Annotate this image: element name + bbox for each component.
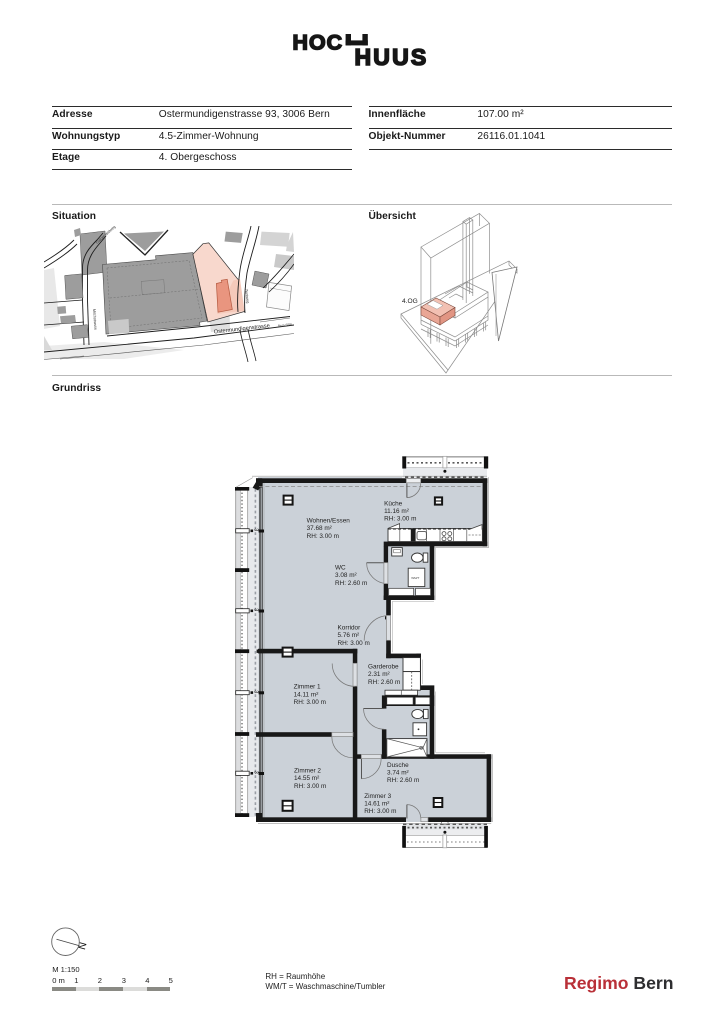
svg-text:RH: 3.00 m: RH: 3.00 m bbox=[364, 808, 396, 815]
svg-text:Küche: Küche bbox=[384, 500, 403, 507]
svg-text:4.OG: 4.OG bbox=[402, 298, 418, 305]
svg-text:14.55 m²: 14.55 m² bbox=[294, 775, 319, 782]
svg-text:Zimmer 1: Zimmer 1 bbox=[294, 684, 321, 691]
svg-text:RH: 2.60 m: RH: 2.60 m bbox=[335, 580, 367, 587]
svg-text:HUUS: HUUS bbox=[355, 44, 429, 70]
svg-text:2.31 m²: 2.31 m² bbox=[368, 671, 390, 678]
svg-text:RH: 3.00 m: RH: 3.00 m bbox=[294, 783, 326, 790]
svg-text:Wohnen/Essen: Wohnen/Essen bbox=[307, 518, 351, 525]
svg-text:RH: 3.00 m: RH: 3.00 m bbox=[384, 516, 416, 523]
svg-text:Zimmer 3: Zimmer 3 bbox=[364, 793, 391, 800]
svg-text:11.16 m²: 11.16 m² bbox=[384, 508, 409, 515]
svg-text:Korridor: Korridor bbox=[338, 625, 362, 632]
svg-text:RH: 3.00 m: RH: 3.00 m bbox=[294, 699, 326, 706]
svg-text:RH: 2.60 m: RH: 2.60 m bbox=[368, 679, 400, 686]
svg-text:37.68 m²: 37.68 m² bbox=[307, 525, 332, 532]
svg-text:3: 3 bbox=[252, 528, 258, 531]
svg-text:RH: 3.00 m: RH: 3.00 m bbox=[307, 533, 339, 540]
svg-text:HOC: HOC bbox=[293, 31, 344, 55]
svg-text:Garderobe: Garderobe bbox=[368, 664, 399, 671]
svg-text:5.76 m²: 5.76 m² bbox=[338, 632, 360, 639]
svg-text:RH: 3.00 m: RH: 3.00 m bbox=[338, 640, 370, 647]
svg-text:14.61 m²: 14.61 m² bbox=[364, 801, 389, 808]
svg-text:WM/T: WM/T bbox=[411, 576, 419, 580]
svg-text:3.74 m²: 3.74 m² bbox=[387, 770, 409, 777]
svg-text:Dusche: Dusche bbox=[387, 762, 409, 769]
svg-text:WC: WC bbox=[335, 564, 346, 571]
svg-text:3.08 m²: 3.08 m² bbox=[335, 572, 357, 579]
svg-text:3: 3 bbox=[252, 608, 258, 611]
svg-text:RH: 2.60 m: RH: 2.60 m bbox=[387, 777, 419, 784]
svg-text:3: 3 bbox=[252, 771, 258, 774]
svg-text:3: 3 bbox=[252, 690, 258, 693]
svg-text:14.11 m²: 14.11 m² bbox=[294, 691, 319, 698]
svg-text:Zimmer 2: Zimmer 2 bbox=[294, 768, 321, 775]
